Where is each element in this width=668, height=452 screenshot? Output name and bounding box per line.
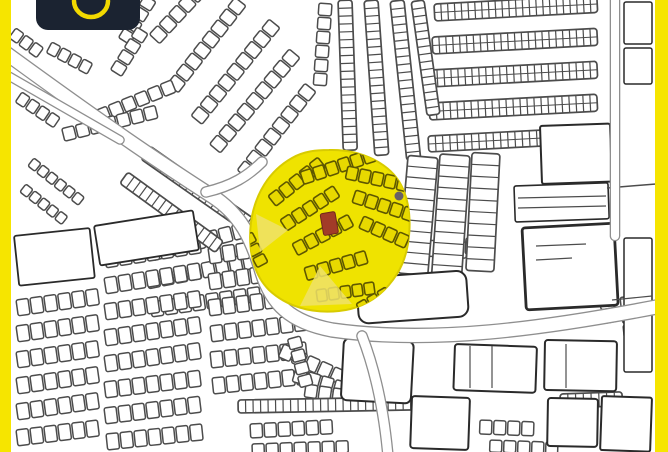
open-block xyxy=(600,396,652,452)
brand-logo: SAKAN xyxy=(36,0,140,30)
open-block xyxy=(624,48,652,84)
city-map xyxy=(0,0,668,452)
right-yellow-bar xyxy=(655,0,668,452)
open-block xyxy=(410,396,470,450)
left-yellow-bar xyxy=(0,0,11,452)
parcel-strip xyxy=(466,153,500,272)
open-block xyxy=(547,398,598,447)
map-screenshot: SAKAN xyxy=(0,0,668,452)
open-block xyxy=(544,340,617,391)
smile-icon xyxy=(36,0,140,30)
open-block xyxy=(453,344,537,393)
open-block xyxy=(624,238,652,310)
open-block xyxy=(522,223,618,310)
open-block xyxy=(624,2,652,44)
open-block xyxy=(624,314,652,372)
open-block xyxy=(540,124,612,184)
open-block xyxy=(514,183,609,222)
open-block xyxy=(14,228,95,286)
small-dark-dot xyxy=(395,192,404,201)
location-marker xyxy=(320,211,339,235)
